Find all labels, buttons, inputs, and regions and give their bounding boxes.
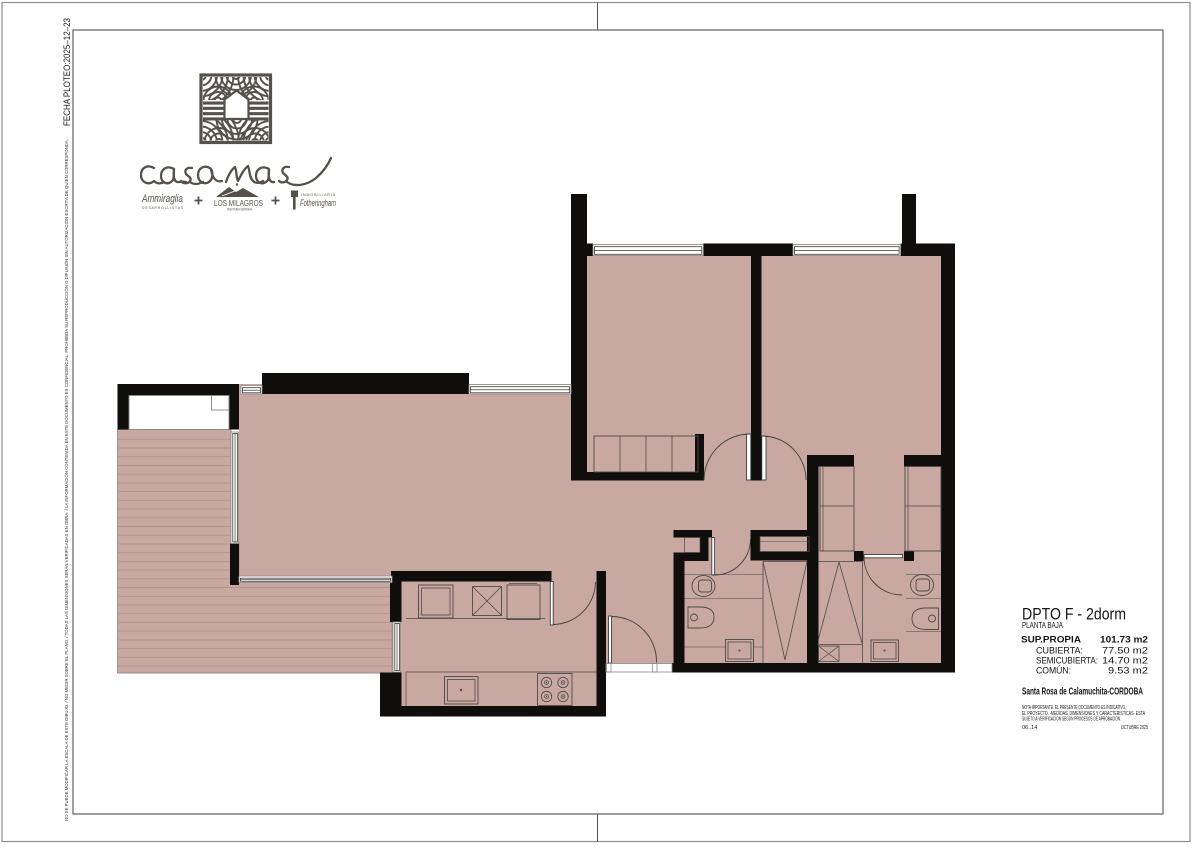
svg-text:Ammiraglia: Ammiraglia — [141, 193, 183, 205]
svg-text:OCTUBRE 2025: OCTUBRE 2025 — [1121, 725, 1148, 731]
svg-text:9.53 m2: 9.53 m2 — [1108, 666, 1148, 676]
svg-text:AVENTURA SERRANA: AVENTURA SERRANA — [227, 208, 253, 212]
svg-text:D E S A R R O L L I S T A S: D E S A R R O L L I S T A S — [142, 206, 184, 210]
svg-text:CUBIERTA:: CUBIERTA: — [1036, 646, 1083, 656]
svg-text:I N M O B I L I A R I A: I N M O B I L I A R I A — [301, 193, 336, 197]
svg-text:COMÚN:: COMÚN: — [1036, 666, 1071, 676]
svg-text:06..14: 06..14 — [1022, 725, 1037, 731]
svg-text:Santa Rosa de Calamuchita-CORD: Santa Rosa de Calamuchita-CORDOBA — [1022, 686, 1143, 698]
svg-text:PLANTA BAJA: PLANTA BAJA — [1022, 621, 1064, 630]
svg-text:SUP.PROPIA: SUP.PROPIA — [1021, 635, 1081, 646]
svg-text:FECHA PLOTEO:2025–12–23: FECHA PLOTEO:2025–12–23 — [62, 18, 73, 126]
svg-text:SUJETO A VERIFICACIÓN SEGÚN PR: SUJETO A VERIFICACIÓN SEGÚN PROCESOS DE … — [1022, 716, 1121, 723]
svg-text:14.70 m2: 14.70 m2 — [1102, 656, 1148, 666]
svg-text:Fotheringham: Fotheringham — [300, 198, 336, 208]
svg-text:SEMICUBIERTA:: SEMICUBIERTA: — [1036, 656, 1098, 666]
svg-text:101.73 m2: 101.73 m2 — [1100, 635, 1148, 646]
svg-text:LOS MILAGROS: LOS MILAGROS — [214, 198, 263, 208]
svg-text:77.50 m2: 77.50 m2 — [1102, 646, 1148, 656]
svg-text:NO SE PUEDE MODIFICAR LA ESCAL: NO SE PUEDE MODIFICAR LA ESCALA DE ESTE … — [63, 139, 69, 821]
